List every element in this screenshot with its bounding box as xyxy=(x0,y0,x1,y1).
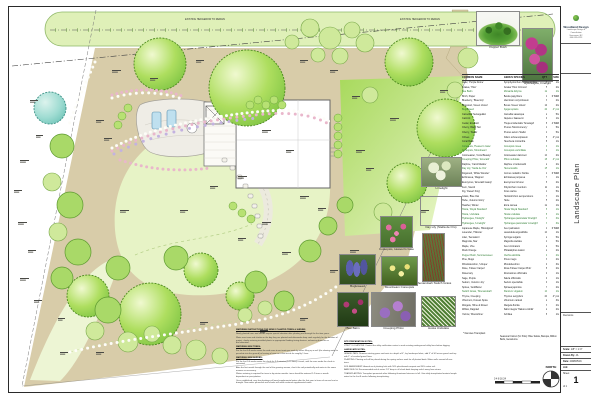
note-heading: WATERING INSTRUCTIONS FOR NEWLY PLANTED … xyxy=(236,329,338,332)
sheet-number: 1 xyxy=(561,375,591,385)
scale-value: 1/8" = 1'-0" xyxy=(571,348,583,351)
scalebar-ticks: 0 4 8 16 24 xyxy=(494,378,507,381)
photo-coreopsis-heavens-gate: Coreopsis, Heaven's Gate xyxy=(380,216,413,248)
note-line: Water new trees and shrubs on the day th… xyxy=(236,337,338,345)
photo-switch-grass: Shenandoah Switch Grass xyxy=(422,233,445,282)
note-line: UTILITY LOCATIONS: Contact the utility n… xyxy=(344,345,458,348)
note-line: PLANTING: Planting soil will be placed d… xyxy=(344,359,458,364)
note-line: Once established, very few plantings wil… xyxy=(236,380,338,385)
photo-hosta-undulata: Hosta Undulata xyxy=(421,296,456,327)
titleblock-spacer-box xyxy=(561,44,591,74)
scale-label: Scale: xyxy=(563,348,570,351)
drawn-by-label: Drawn By: xyxy=(563,354,575,357)
cell-genus: Achillea xyxy=(504,313,540,318)
company-logo-icon xyxy=(573,15,579,21)
note-line: For the first 6-8 weeks water the wide a… xyxy=(236,350,338,355)
lounge-chair xyxy=(152,112,161,129)
photo-caption: Hosta Undulata xyxy=(408,327,469,330)
landscape-plan-sheet: EXISTING HEDGEROW TO REMAIN EXISTING HED… xyxy=(0,0,600,400)
photo-caption: Coreopsis, Heaven's Gate xyxy=(367,248,426,251)
photo-pepper-bush: Pepper Bush xyxy=(476,11,520,46)
note-line: After the first month through the end of… xyxy=(236,367,338,372)
sheet-of-label: of 1 xyxy=(561,385,591,388)
job-label: Job: xyxy=(563,366,568,369)
photo-creeping-phlox: Creeping Phlox xyxy=(371,292,416,327)
note-heading: LANDSCAPE NOTES: xyxy=(344,349,458,352)
watering-notes-block: WATERING INSTRUCTIONS FOR NEWLY PLANTED … xyxy=(236,328,338,394)
note-line: GRAVEL PATH: Remove existing grass and r… xyxy=(344,353,458,358)
hedge-label-1: EXISTING HEDGEROW TO REMAIN xyxy=(185,18,225,21)
revisions-box: Revisions xyxy=(561,313,591,347)
note-line: TRANSPLANTING: Transplant perennials aft… xyxy=(344,373,458,378)
cell-size: 1G xyxy=(547,313,559,318)
photo-caption: Moonbeam Coreopsis xyxy=(368,286,431,289)
pots-note: Seasonal Colour (for Pots): Blue Salvia,… xyxy=(500,336,558,342)
north-arrow-icon: NORTH xyxy=(543,365,559,387)
note-heading: WATERING NEW SHRUBS: xyxy=(236,357,338,360)
sheet-number-box: Sheet 1 of 1 xyxy=(561,371,591,393)
revisions-label: Revisions xyxy=(563,314,573,317)
site-preparation-notes-block: SITE PREPARATION NOTES:UTILITY LOCATIONS… xyxy=(344,340,458,394)
sheet-title-box: Landscape Plan xyxy=(561,74,591,313)
sheet-title-vertical: Landscape Plan xyxy=(572,163,581,224)
photo-limelight: Limelight xyxy=(421,157,462,187)
col-size: SIZE xyxy=(547,75,559,80)
col-genus-species: GENUS SPECIES xyxy=(504,75,540,80)
cell-common: Yarrow, 'Moonshine' xyxy=(462,313,504,318)
photo-bugleweed: Bugleweed xyxy=(339,254,376,285)
scale-bar: 0 4 8 16 24 xyxy=(494,378,540,384)
date-value: 2008/05/16 xyxy=(570,360,582,363)
company-logo-box: Woodland Design Landscape Design & Consu… xyxy=(561,6,591,44)
photo-bee-balm: Bee Balm xyxy=(337,292,369,327)
cell-qty: 8 xyxy=(540,313,548,318)
north-label: NORTH xyxy=(546,365,557,369)
tree-teal xyxy=(34,92,66,124)
note-line: Winter watering is required for trees in… xyxy=(236,373,338,378)
titleblock: Woodland Design Landscape Design & Consu… xyxy=(560,6,591,393)
table-row: Yarrow, 'Moonshine'Achillea81G xyxy=(462,313,559,318)
note-heading: SITE PREPARATION NOTES: xyxy=(344,341,458,344)
note-line: Newly planted trees and shrubs require s… xyxy=(236,333,338,336)
schedule-body: Aster, 'Purple Dome'Symphyotrichum novae… xyxy=(462,81,559,317)
col-qty: QTY xyxy=(540,75,548,80)
hedge-label-2: EXISTING HEDGEROW TO REMAIN xyxy=(400,18,440,21)
transplant-legend: * Denotes Transplant xyxy=(463,332,485,335)
date-label: Date: xyxy=(563,360,569,363)
col-common-name: COMMON NAME xyxy=(462,75,504,80)
drawn-by-value: JA xyxy=(576,354,579,357)
company-phone: 604-555-0123 xyxy=(561,37,591,40)
note-line: SOIL AMENDMENT: Amend each planting hole… xyxy=(344,366,458,369)
photo-moonbeam-coreopsis: Moonbeam Coreopsis xyxy=(381,256,418,286)
note-heading: WATERING NEW TREES: xyxy=(236,346,338,349)
note-line: BARK MULCH: Recommended mulch varies 2-3… xyxy=(344,369,458,372)
note-line: For the first 3-4 weeks water the shrub … xyxy=(236,361,338,366)
schedule-header: COMMON NAME GENUS SPECIES QTY SIZE xyxy=(462,74,559,81)
photo-daylily: Day Lily (Stella de Oro) xyxy=(420,196,462,226)
plant-schedule-table: COMMON NAME GENUS SPECIES QTY SIZE Aster… xyxy=(462,74,559,326)
